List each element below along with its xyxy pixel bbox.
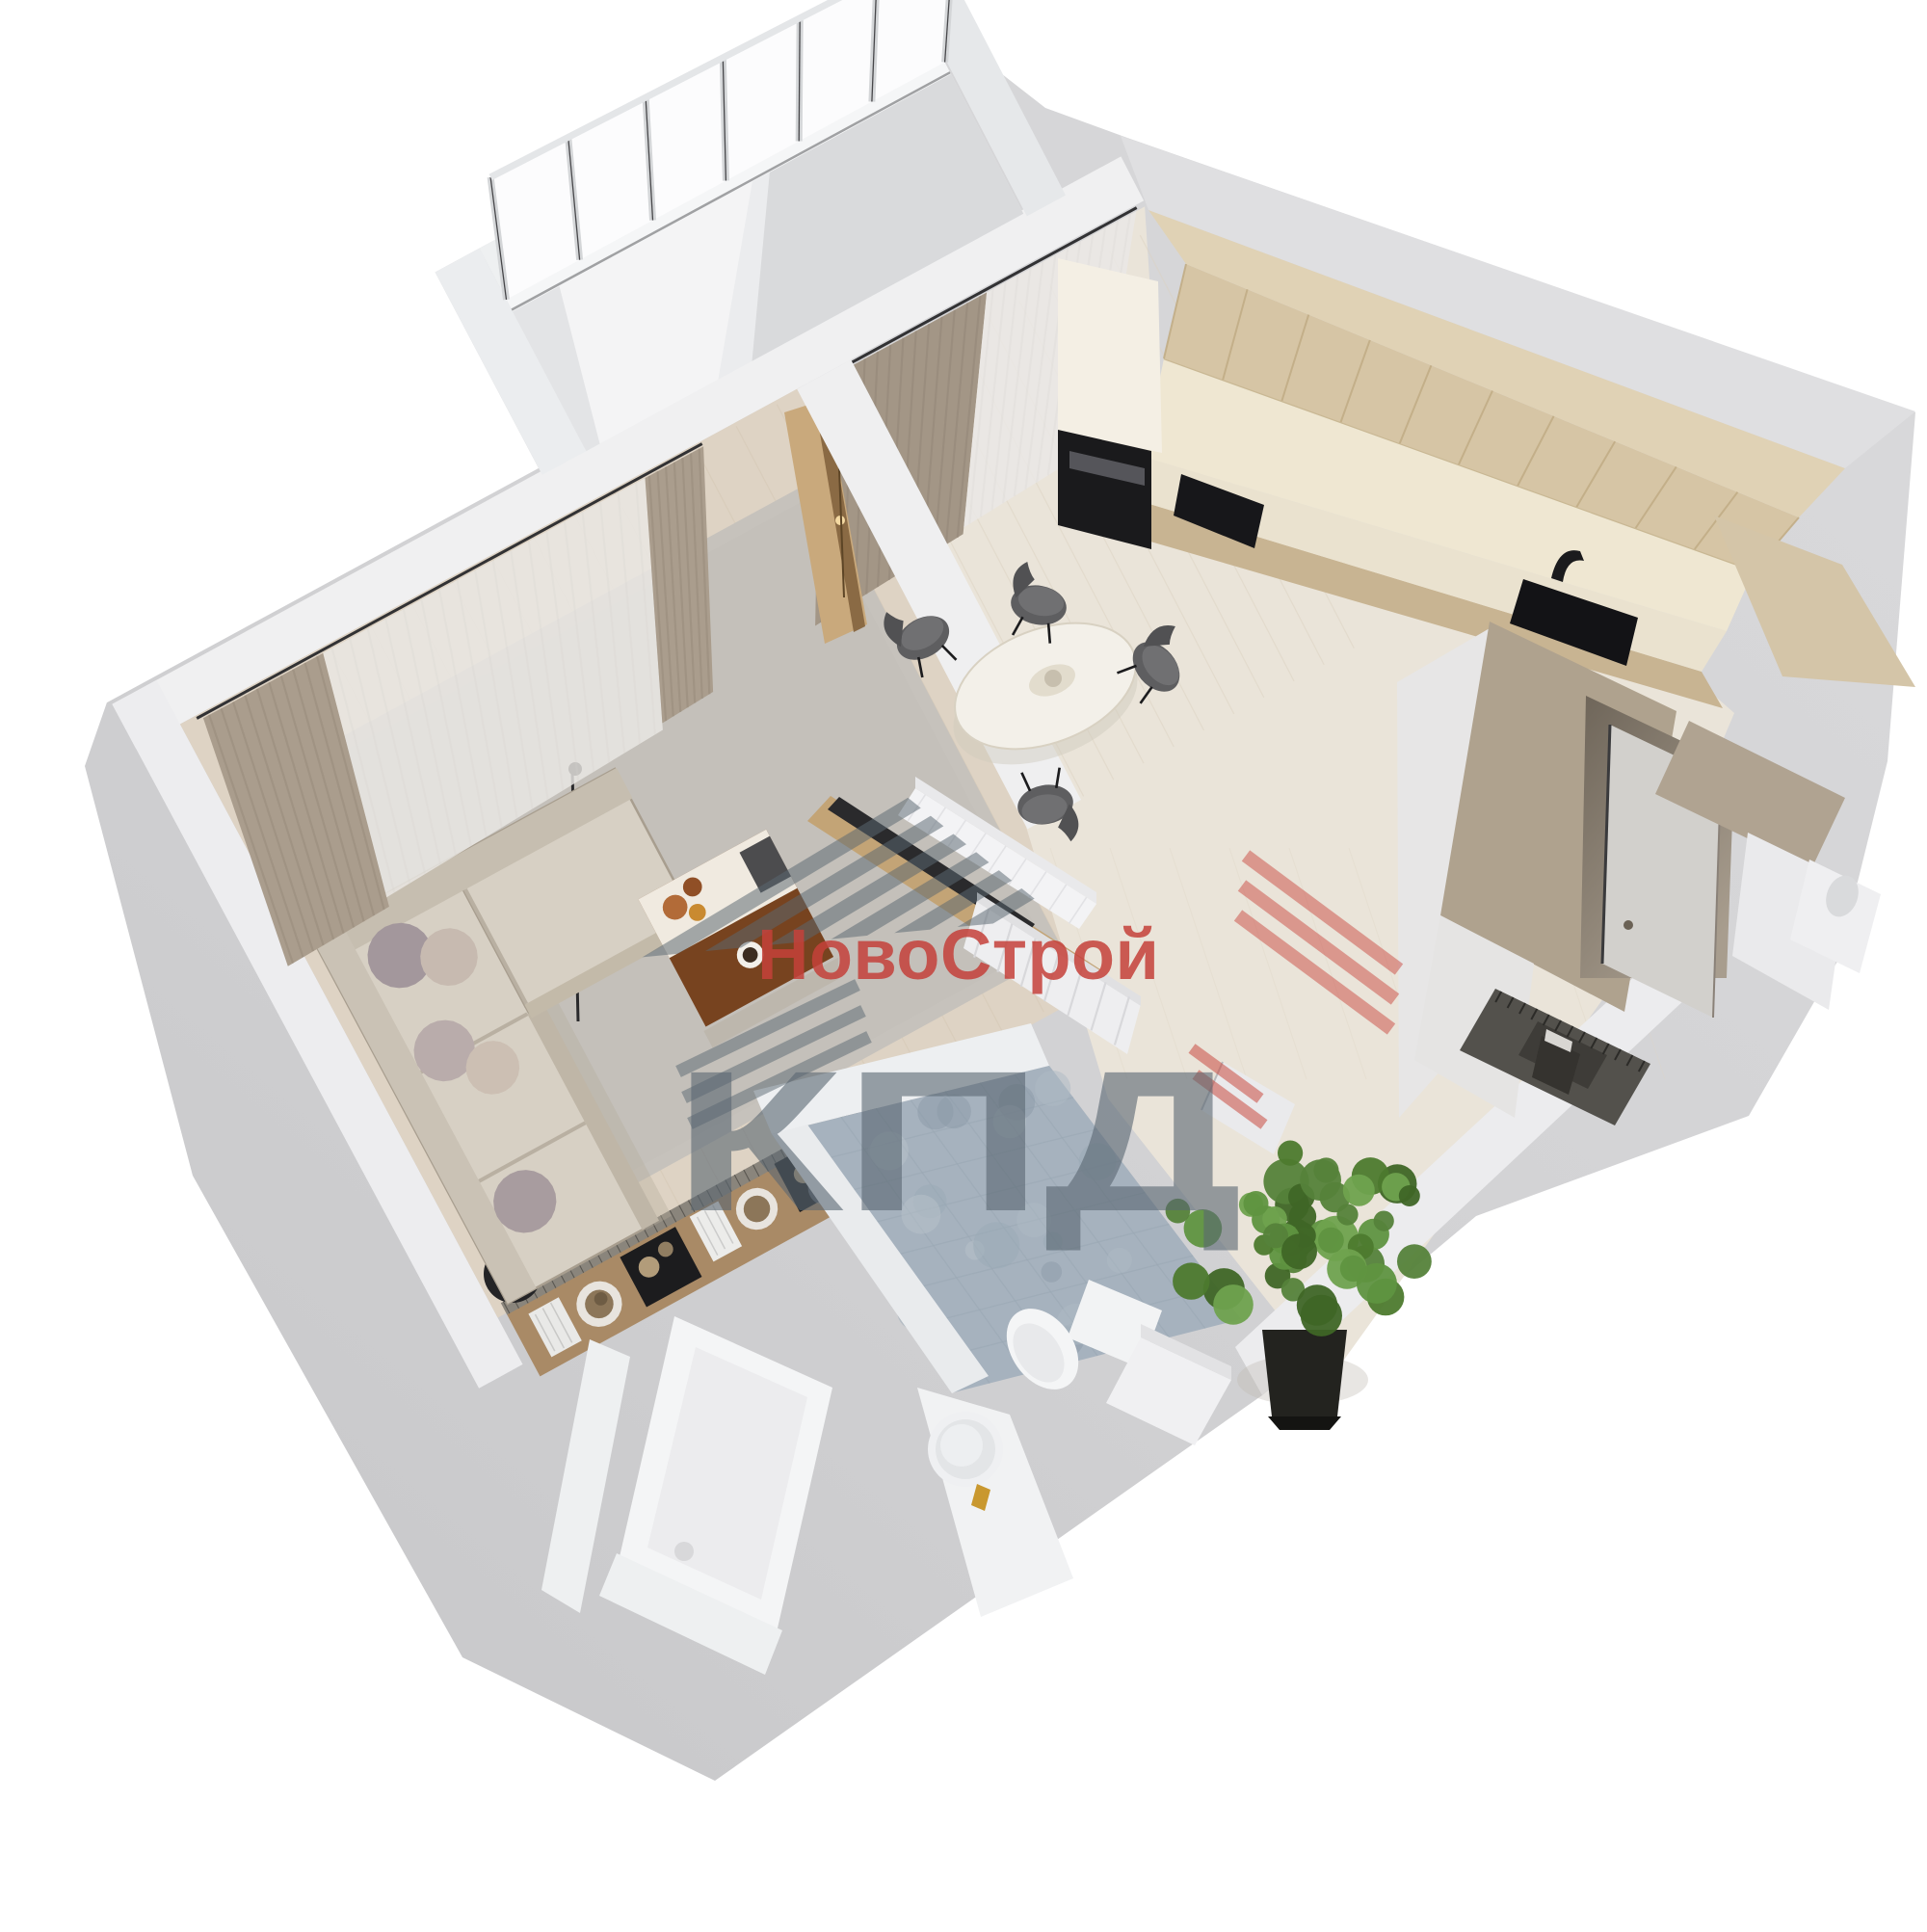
svg-text:КПД: КПД	[673, 1030, 1243, 1254]
svg-text:НовоСтрой: НовоСтрой	[757, 914, 1159, 994]
